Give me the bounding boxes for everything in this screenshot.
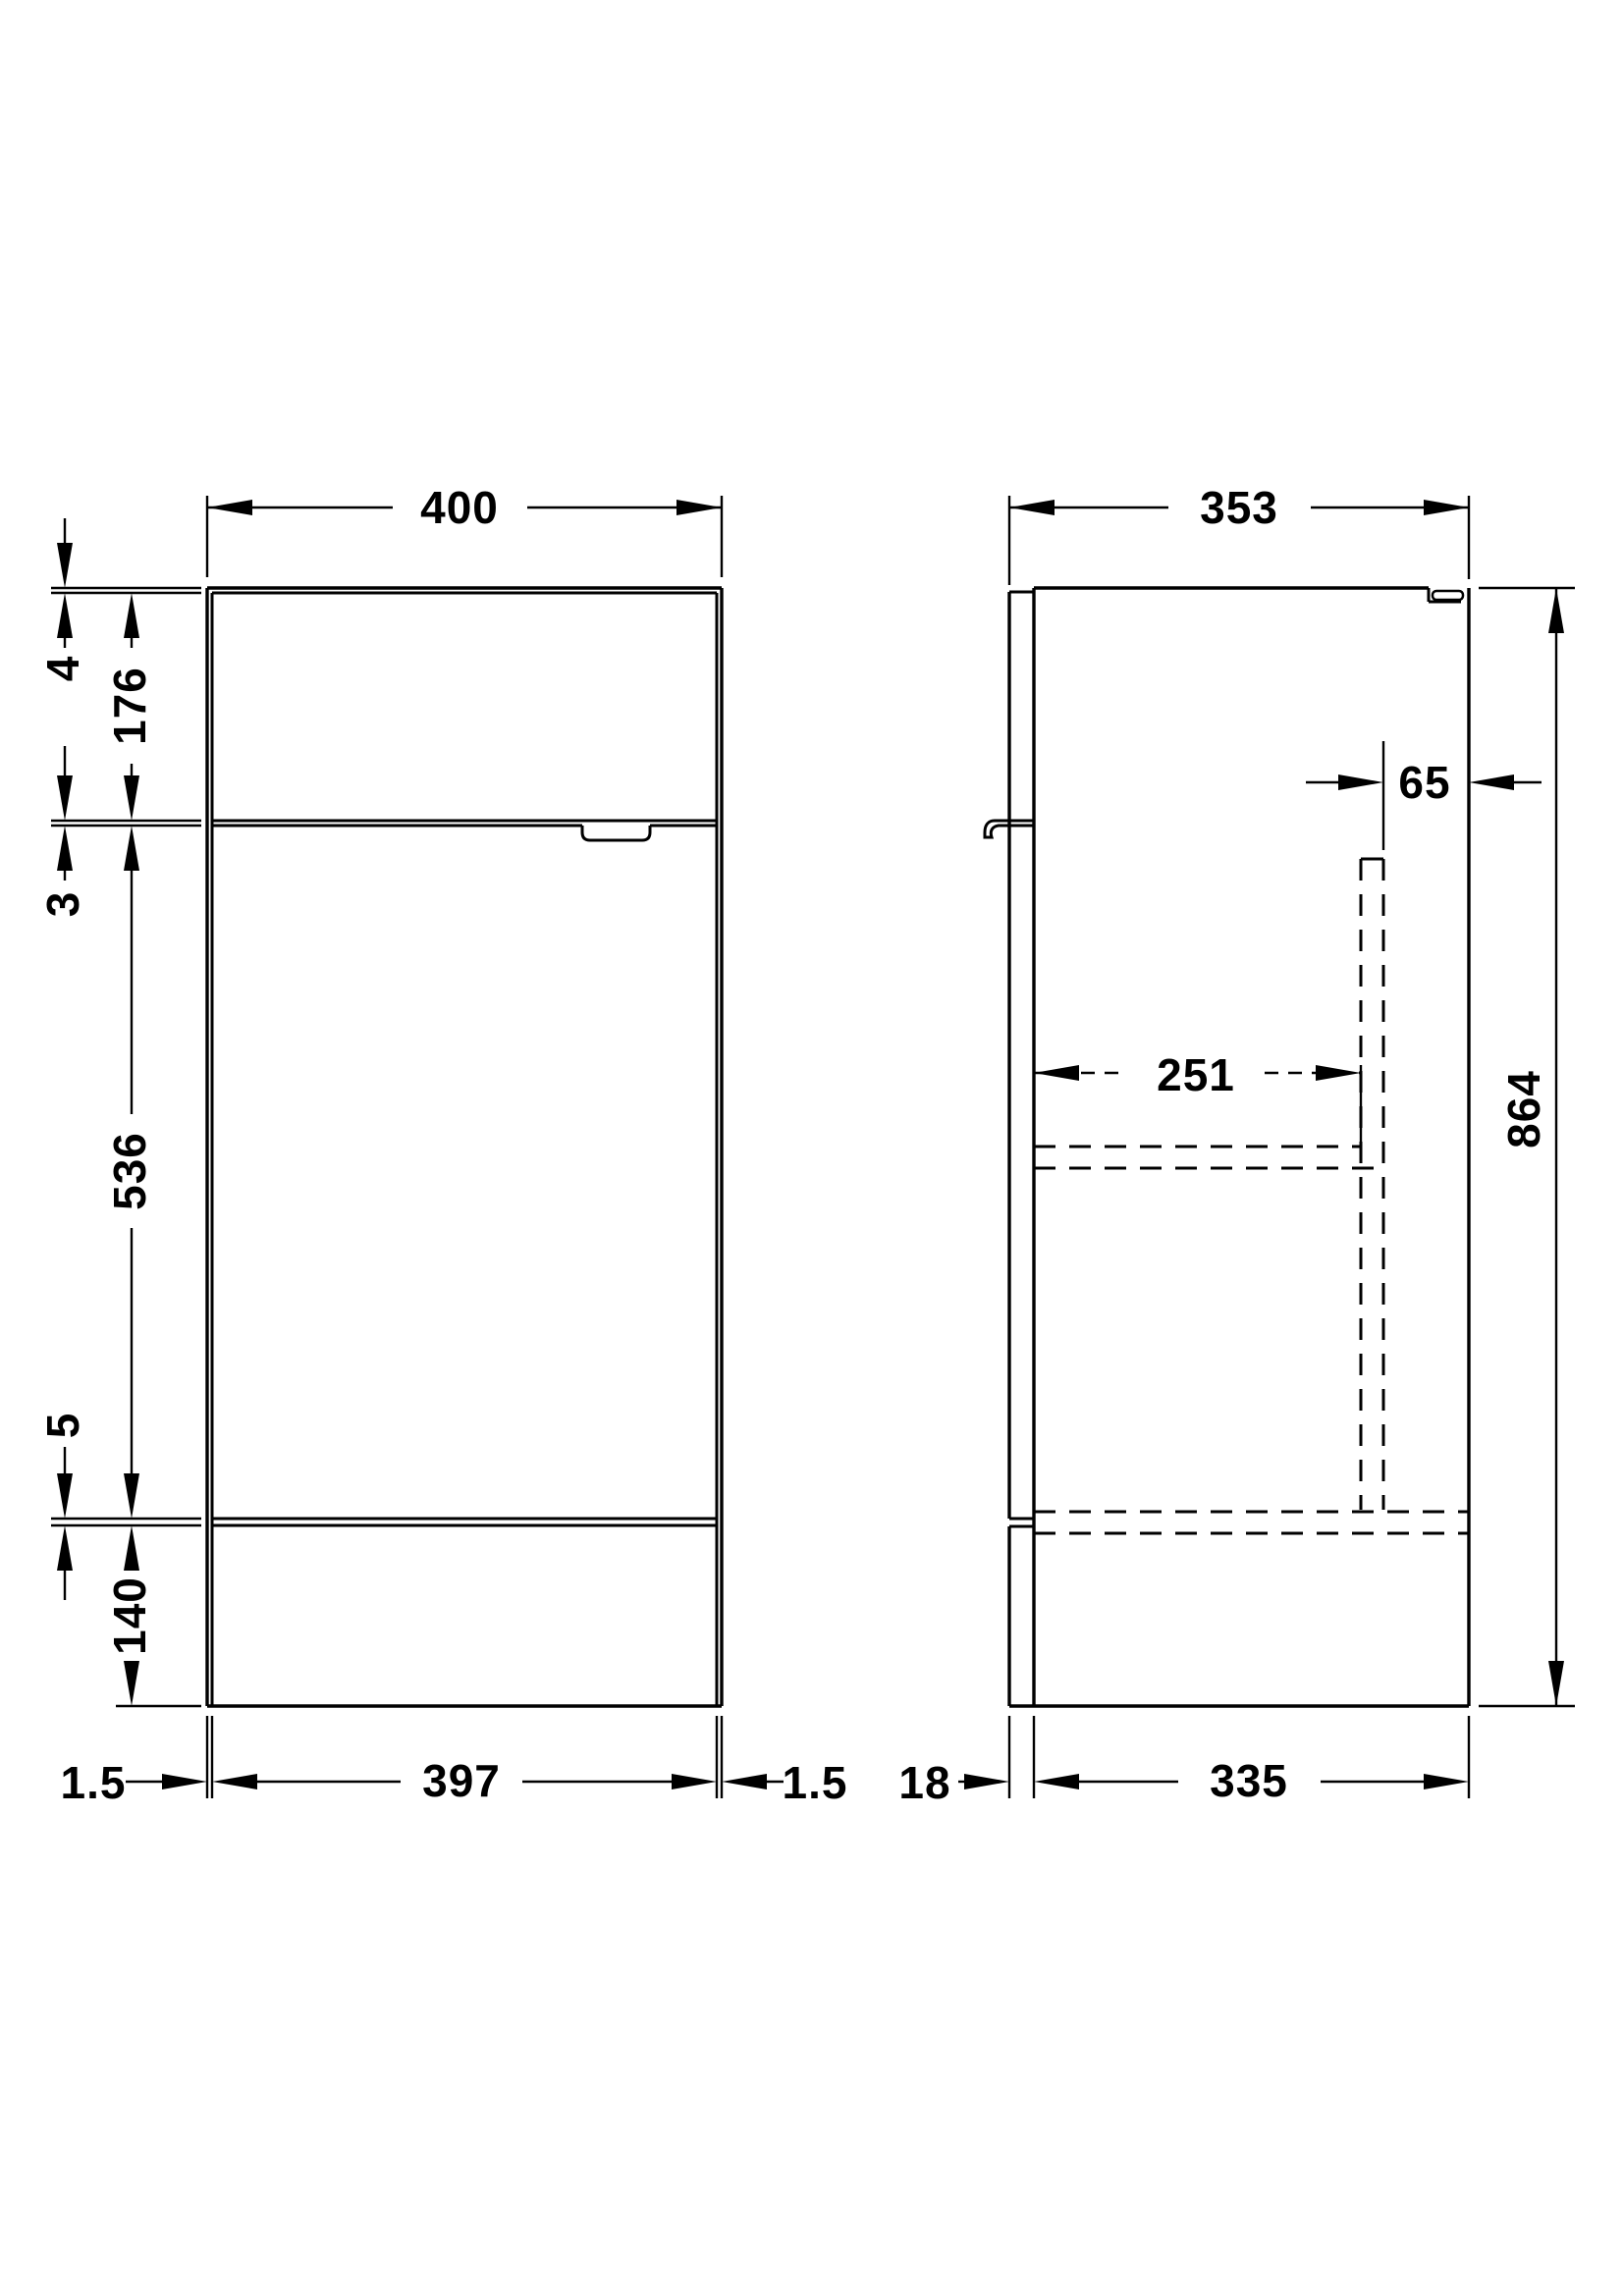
- hidden-pipe-lines: [1361, 859, 1383, 1510]
- dim-front-overall-width: 400: [420, 485, 499, 530]
- dim-front-door-height: 536: [107, 1132, 152, 1210]
- handle-notch: [582, 826, 650, 840]
- front-panel-side-edges: [212, 593, 717, 1706]
- side-view: [985, 588, 1469, 1706]
- extension-lines: [51, 496, 1575, 1798]
- front-view-outline: [207, 588, 722, 1706]
- door-edge-profile: [1009, 592, 1034, 1706]
- door-plinth-seam: [212, 1519, 717, 1525]
- dim-side-shelf-depth: 251: [1157, 1052, 1235, 1097]
- dim-side-pipe-offset: 65: [1398, 760, 1450, 805]
- front-view: [207, 588, 722, 1706]
- technical-drawing-page: 400 4 176 3 536 5 140 1.5 397 1.5 353 65…: [0, 0, 1623, 2296]
- dim-front-left-reveal: 1.5: [61, 1760, 127, 1805]
- hidden-shelf-lines: [1034, 1147, 1383, 1168]
- dim-side-carcass-depth: 335: [1210, 1758, 1288, 1803]
- dim-front-right-reveal: 1.5: [783, 1760, 848, 1805]
- dim-front-upper-height: 176: [107, 667, 152, 745]
- drawer-door-seam: [212, 821, 717, 826]
- hidden-bottom-panel-lines: [1034, 1512, 1469, 1533]
- dim-front-lower-gap: 5: [40, 1413, 85, 1439]
- technical-drawing-canvas: [0, 0, 1623, 2296]
- dim-front-top-thickness: 4: [40, 656, 85, 682]
- bracket-slot: [1433, 591, 1463, 600]
- dim-front-plinth-height: 140: [107, 1576, 152, 1655]
- dim-side-overall-height: 864: [1501, 1070, 1546, 1148]
- dim-front-upper-gap: 3: [40, 891, 85, 918]
- dim-front-door-width: 397: [422, 1758, 501, 1803]
- dim-side-overall-depth: 353: [1200, 485, 1278, 530]
- wall-bracket: [1429, 588, 1463, 602]
- dim-side-door-thickness: 18: [898, 1760, 950, 1805]
- dimension-lines: [57, 500, 1564, 1789]
